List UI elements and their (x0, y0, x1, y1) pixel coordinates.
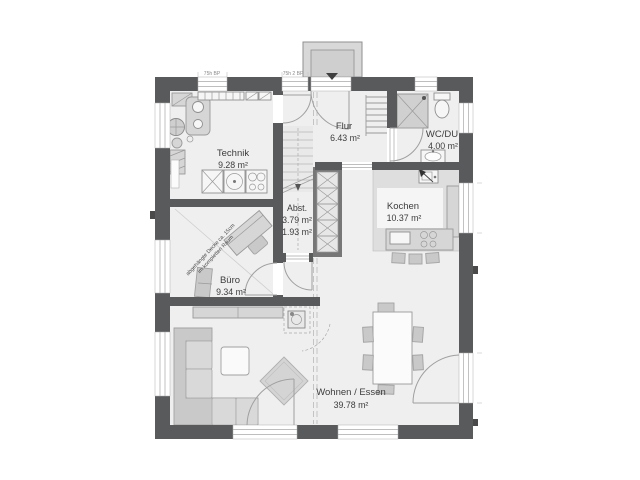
flur-label: Flur (336, 121, 352, 132)
abst-area-2: 1.93 m² (282, 227, 312, 237)
window-annotation-left: 75h BP (204, 71, 221, 77)
shower (397, 94, 428, 128)
window-right-wc (459, 103, 473, 133)
shaft-column (313, 167, 342, 257)
coffee-table (221, 347, 249, 375)
window-left-buero (155, 240, 170, 293)
technik-label: Technik (217, 148, 249, 159)
wohnen-area: 39.78 m² (334, 400, 369, 410)
kitchen-island (386, 229, 453, 250)
door-opening-technik (273, 95, 283, 123)
window-right-kochen (459, 183, 473, 233)
buero-area: 9.34 m² (216, 287, 246, 297)
kochen-label: Kochen (387, 201, 419, 212)
dining-table (373, 312, 412, 384)
window-bottom-essen (338, 425, 398, 439)
french-door-right (459, 353, 473, 403)
window-annotation-right: 75h 2 BP (283, 71, 304, 77)
wohnen-label: Wohnen / Essen (316, 387, 386, 398)
wc-label: WC/DU (426, 129, 458, 140)
bar-stools (392, 253, 440, 264)
toilet (434, 93, 450, 118)
door-opening-wc (387, 128, 397, 162)
screenshot-canvas: Technik 9.28 m² Flur 6.43 m² WC/DU 4.00 … (0, 0, 640, 480)
floor-plan: Technik 9.28 m² Flur 6.43 m² WC/DU 4.00 … (0, 0, 640, 480)
window-top-wc (415, 77, 437, 91)
abst-area-1: 3.79 m² (282, 215, 312, 225)
workbench-shelf (198, 92, 271, 100)
abst-label: Abst. (287, 203, 307, 213)
door-opening-buero (273, 263, 283, 295)
entrance-door-opening (311, 77, 351, 91)
entrance-porch (303, 42, 362, 77)
window-top-flur (282, 77, 308, 91)
wc-area: 4.00 m² (428, 141, 458, 151)
buero-label: Büro (220, 275, 240, 286)
kochen-area: 10.37 m² (387, 213, 422, 223)
sideboard (193, 307, 283, 318)
wall-cabinet (171, 160, 179, 188)
flur-area: 6.43 m² (330, 133, 360, 143)
washer-dryer-units (202, 170, 267, 193)
technik-area: 9.28 m² (218, 160, 248, 170)
window-left-wohnen (155, 332, 170, 396)
terrace-door-bottom (233, 425, 297, 439)
window-top-technik (198, 77, 227, 91)
washbasin (421, 150, 445, 163)
window-left-technik (155, 103, 170, 148)
